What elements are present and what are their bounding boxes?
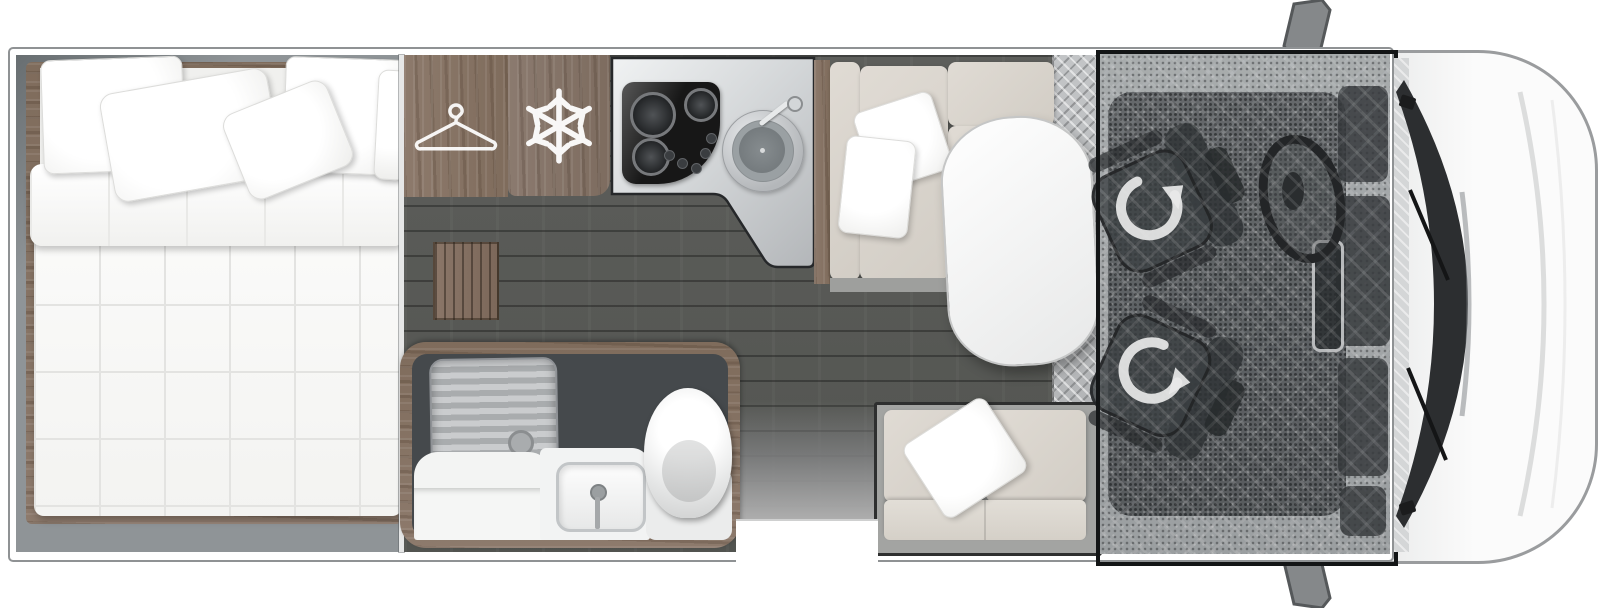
fridge <box>508 55 610 196</box>
entry-floor <box>738 400 876 520</box>
dinette-wood-trim <box>814 60 830 284</box>
sofa-backrest-seam <box>984 500 986 540</box>
hanger-icon <box>414 97 498 155</box>
toilet-bowl-inner <box>662 440 716 502</box>
bed-steps <box>433 242 499 320</box>
kitchen-faucet-knob <box>787 96 803 112</box>
hob-knob <box>706 133 717 144</box>
sink-drain <box>760 148 765 153</box>
hob-knob <box>677 158 688 169</box>
burner <box>630 92 676 138</box>
hob-knob <box>691 163 702 174</box>
snowflake-icon <box>516 83 602 169</box>
hob-knob <box>664 150 675 161</box>
dinette-pillow <box>837 135 917 240</box>
hob-knob <box>700 148 711 159</box>
cab-outline <box>1096 50 1398 566</box>
wardrobe <box>404 55 508 197</box>
body-crease-line <box>1510 88 1590 520</box>
motorhome-floor-plan <box>0 0 1598 608</box>
burner <box>684 88 718 122</box>
entry-door-opening <box>736 519 878 608</box>
washbasin-faucet-stem <box>595 497 600 529</box>
dinette-table <box>938 112 1103 370</box>
windscreen <box>1392 72 1476 540</box>
